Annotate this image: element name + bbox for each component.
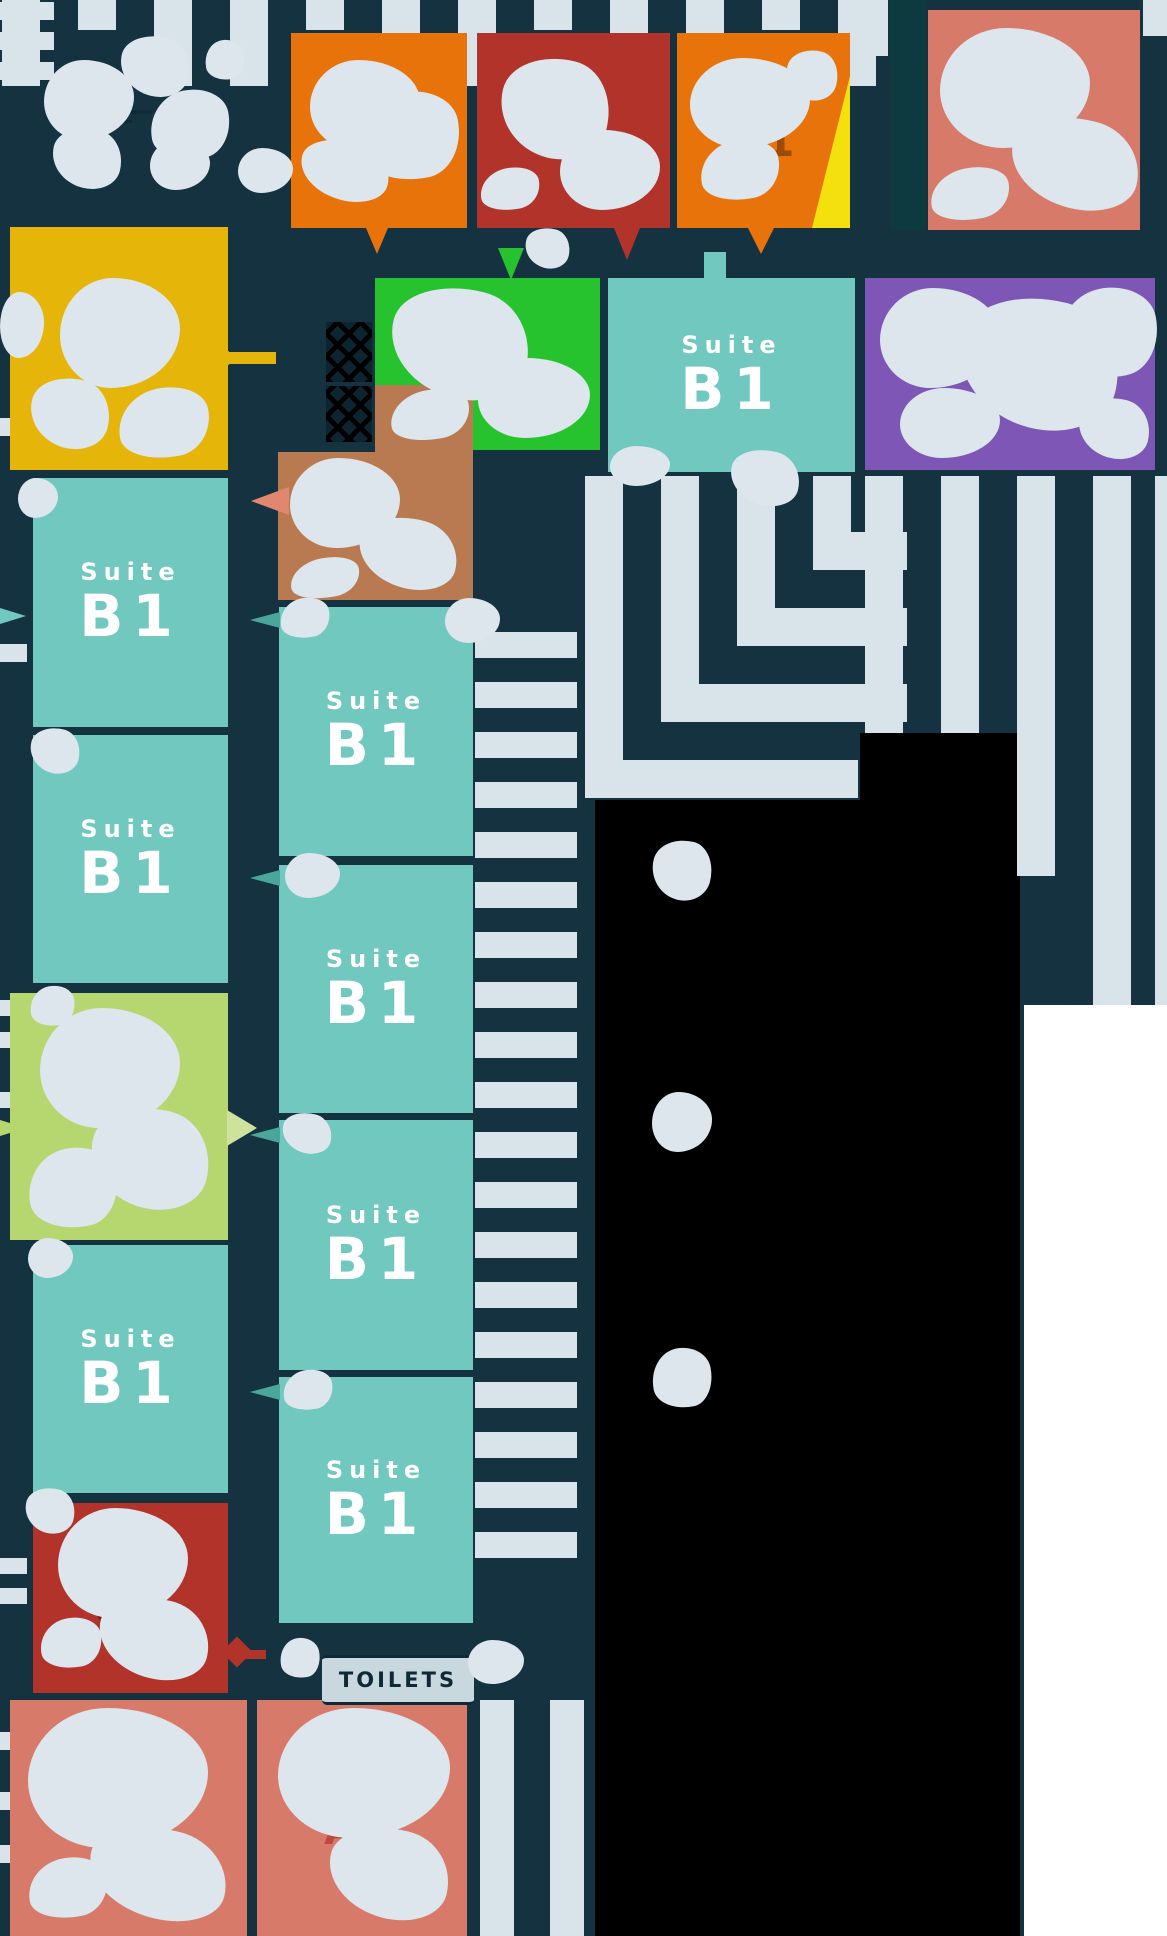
parking-stripe [865, 476, 903, 733]
suite-b1-label: SuiteB1 [279, 865, 473, 1113]
parking-stripe [475, 782, 577, 808]
blob-overlay [238, 148, 293, 193]
suite-b1-label: SuiteB1 [33, 478, 228, 727]
parking-stripe [475, 1482, 577, 1508]
parking-stripe [941, 476, 979, 733]
parking-stripe [0, 1588, 27, 1604]
teal-arrow-icon [250, 870, 280, 886]
suite-b1-label: SuiteB1 [608, 278, 855, 472]
suite-b1-label: SuiteB1 [33, 735, 228, 983]
blob-overlay [521, 223, 574, 273]
parking-stripe [475, 832, 577, 858]
parking-stripe [475, 1132, 577, 1158]
blob-overlay [277, 1635, 324, 1682]
parking-chevron [585, 476, 623, 798]
parking-stripe [1093, 476, 1131, 1005]
parking-stripe [762, 0, 800, 30]
white-zone [1024, 1005, 1167, 1936]
parking-stripe [1017, 476, 1055, 876]
red-pin-icon [614, 228, 640, 260]
parking-stripe [550, 1700, 584, 1936]
teal-notch [704, 252, 726, 280]
black-zone [860, 733, 1020, 1936]
black-zone [595, 800, 860, 1936]
teal-arrow-icon [250, 1384, 280, 1400]
teal-arrow-icon [0, 608, 26, 624]
parking-stripe [475, 932, 577, 958]
teal-arrow-icon [250, 612, 280, 628]
toilets-label: TOILETS [322, 1655, 474, 1705]
suite-b1-label: SuiteB1 [279, 1120, 473, 1370]
parking-stripe [1143, 0, 1167, 36]
parking-stripe [0, 32, 54, 50]
parking-stripe [475, 1282, 577, 1308]
parking-stripe [475, 1532, 577, 1558]
parking-stripe [0, 2, 54, 20]
parking-chevron [585, 760, 858, 798]
hatch-marker [326, 386, 372, 442]
parking-stripe [475, 1332, 577, 1358]
suite-b1-label: SuiteB1 [279, 607, 473, 856]
suite-b1-label: SuiteB1 [33, 1245, 228, 1493]
hatch-marker [326, 322, 372, 382]
parking-stripe [534, 0, 572, 30]
parking-stripe [0, 1558, 27, 1574]
salmon-arrow-icon [251, 487, 289, 515]
parking-stripe [475, 882, 577, 908]
green-arrow-icon [227, 1110, 257, 1146]
parking-stripe [475, 1432, 577, 1458]
parking-stripe [475, 1182, 577, 1208]
site-plan: Suite V1 Suite C1 Suite V1 Suite A1 Suit… [0, 0, 1167, 1936]
parking-stripe [78, 0, 116, 30]
blob-overlay [150, 140, 210, 190]
parking-stripe [874, 0, 888, 56]
orange-pin-icon [366, 228, 388, 254]
parking-stripe [475, 1032, 577, 1058]
parking-stripe [0, 644, 27, 662]
parking-stripe [475, 732, 577, 758]
parking-stripe [0, 62, 54, 80]
parking-stripe [475, 1232, 577, 1258]
green-pin-icon [498, 248, 524, 280]
tree-strip [890, 0, 926, 230]
orange-pin-icon [748, 228, 774, 254]
parking-stripe [475, 1082, 577, 1108]
suite-b1-label: SuiteB1 [279, 1377, 473, 1623]
parking-stripe [1155, 476, 1167, 1005]
parking-stripe [475, 982, 577, 1008]
parking-stripe [475, 682, 577, 708]
blob-overlay [468, 1640, 524, 1684]
parking-stripe [306, 0, 344, 30]
parking-stripe [480, 1700, 514, 1936]
parking-stripe [475, 1382, 577, 1408]
